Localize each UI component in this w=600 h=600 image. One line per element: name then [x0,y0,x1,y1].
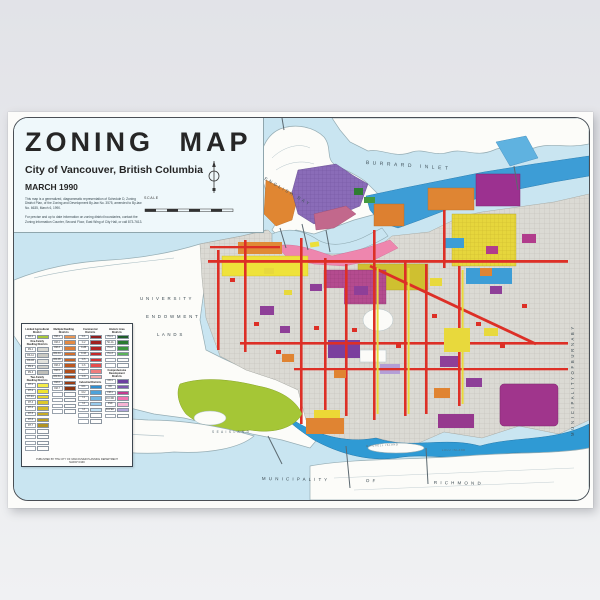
legend-columns: Limited Agricultural DistrictRA-1One-Fam… [25,327,129,459]
legend-swatch [64,375,76,380]
legend-code: C-2 [78,340,89,345]
legend-box: Limited Agricultural DistrictRA-1One-Fam… [21,323,133,467]
marpole-yellow [314,410,340,418]
marpole-orange [306,418,344,434]
legend-code [105,414,116,419]
legend-entry-empty [52,404,76,409]
legend-swatch [90,335,102,340]
legend-swatch [90,346,102,351]
scale-bar-group: SCALE [144,196,239,220]
legend-code: C-5 [78,358,89,363]
legend-entry-I-3: I-3 [78,408,102,413]
legend-swatch [64,346,76,351]
map-note-2: For precise and up to date information o… [25,215,143,224]
legend-section-header: Multiple Dwelling Districts [52,328,76,334]
legend-swatch [90,352,102,357]
legend-swatch [90,358,102,363]
legend-swatch [117,414,129,419]
title-block: ZONING MAP City of Vancouver, British Co… [14,118,264,233]
legend-entry-C-2B: C-2B [78,346,102,351]
legend-section-header: Limited Agricultural District [25,328,49,334]
legend-code: HA-2 [105,346,116,351]
legend-section-header: Commercial Districts [78,328,102,334]
legend-code: FCCDD [105,396,116,401]
legend-entry-RT-1: RT-1 [25,383,49,388]
legend-swatch [117,379,129,384]
legend-entry-C-8: C-8 [78,375,102,380]
legend-code: RM-3A [52,352,63,357]
champlain-purple [500,384,558,426]
legend-entry-I-2: I-2 [78,402,102,407]
legend-entry-RS-2: RS-2 [25,365,49,370]
legend-code: RM-3B [52,358,63,363]
hastings-orange [428,188,474,210]
map-label-lulu-island: LULU ISLAND [442,449,466,452]
legend-code [105,358,116,363]
legend-code: RM-7 [52,386,63,391]
legend-swatch [90,390,102,395]
map-date: MARCH 1990 [25,182,263,192]
map-frame: ZONING MAP City of Vancouver, British Co… [13,117,590,501]
legend-entry-RT-3: RT-3 [25,400,49,405]
legend-entry-empty [78,413,102,418]
legend-swatch [37,359,49,364]
legend-entry-RM-1: RM-1 [52,335,76,340]
legend-entry-RS-1B: RS-1B [25,359,49,364]
legend-code: M-2 [78,390,89,395]
legend-section-header: Industrial Districts [78,381,102,384]
legend-swatch [64,386,76,391]
legend-entry-RT-2A: RT-2A [25,395,49,400]
legend-entry-M-2: M-2 [78,390,102,395]
legend-code [25,446,36,451]
musqueam-white [194,411,226,425]
legend-swatch [37,370,49,375]
legend-code: RT-4 [25,406,36,411]
legend-code: RT-3 [25,400,36,405]
legend-code: RM-1 [52,335,63,340]
legend-entry-RT-5: RT-5 [25,412,49,417]
legend-swatch [117,335,129,340]
legend-entry-C-6: C-6 [78,363,102,368]
legend-code: I-3 [78,408,89,413]
legend-swatch [64,409,76,414]
legend-entry-RT-2: RT-2 [25,389,49,394]
legend-code: FM-1 [105,391,116,396]
legend-swatch [90,419,102,424]
legend-code: RS-1A [25,353,36,358]
legend-swatch [37,400,49,405]
legend-entry-C-7: C-7 [78,369,102,374]
legend-entry-C-3A: C-3A [78,352,102,357]
legend-code: C-6 [78,363,89,368]
map-title: ZONING MAP [25,127,263,158]
legend-entry-FCCDD: FCCDD [105,396,129,401]
legend-entry-FM-1: FM-1 [105,391,129,396]
legend-entry-C-1: C-1 [78,335,102,340]
legend-swatch [37,406,49,411]
legend-entry-empty [25,435,49,440]
fraserview-purple [438,414,474,428]
map-label-of: O F [366,478,376,483]
legend-swatch [64,352,76,357]
legend-code: RM-5 [52,369,63,374]
pne-purple [476,174,520,206]
legend-swatch [90,385,102,390]
legend-entry-M-1: M-1 [78,385,102,390]
legend-swatch [64,381,76,386]
legend-entry-RT-6: RT-6 [25,418,49,423]
legend-entry-RM-5A: RM-5A [52,375,76,380]
legend-swatch [90,363,102,368]
legend-code [25,435,36,440]
legend-swatch [64,398,76,403]
legend-entry-CD-1: CD-1 [105,379,129,384]
legend-swatch [90,375,102,380]
legend-entry-RM-7: RM-7 [52,386,76,391]
legend-swatch [64,358,76,363]
legend-code: RT-1 [25,383,36,388]
legend-entry-empty [105,363,129,368]
legend-section-header: Historic Area Districts [105,328,129,334]
legend-entry-HA-1A: HA-1A [105,340,129,345]
map-note-1: This map is a generalized, diagrammatic … [25,197,143,210]
legend-entry-I-1: I-1 [78,396,102,401]
legend-code: BCPED [105,408,116,413]
legend-swatch [117,363,129,368]
legend-code: RS-1 [25,347,36,352]
legend-swatch [90,402,102,407]
legend-entry-RM-3A: RM-3A [52,352,76,357]
legend-swatch [90,340,102,345]
legend-entry-RM-5: RM-5 [52,369,76,374]
legend-entry-RM-4: RM-4 [52,363,76,368]
legend-code: RT-2 [25,389,36,394]
legend-code: HA-1 [105,335,116,340]
legend-code: RT-5 [25,412,36,417]
map-label-uel-1: U N I V E R S I T Y [140,296,192,301]
legend-swatch [117,408,129,413]
legend-code: I-2 [78,402,89,407]
legend-entry-RM-3B: RM-3B [52,358,76,363]
legend-code: DD [105,385,116,390]
legend-swatch [37,383,49,388]
poster: ZONING MAP City of Vancouver, British Co… [8,112,593,508]
legend-code [78,413,89,418]
legend-entry-RS-3: RS-3 [25,370,49,375]
map-label-uel-3: L A N D S [157,332,183,337]
legend-code [105,363,116,368]
legend-swatch [117,340,129,345]
legend-entry-RT-4: RT-4 [25,406,49,411]
legend-code: RT-2A [25,395,36,400]
compass-north-arrow [206,160,222,194]
legend-swatch [37,353,49,358]
legend-swatch [117,346,129,351]
legend-entry-empty [52,392,76,397]
legend-swatch [37,423,49,428]
legend-swatch [90,408,102,413]
legend-swatch [37,395,49,400]
legend-swatch [37,446,49,451]
legend-code: RT-7 [25,423,36,428]
legend-swatch [64,340,76,345]
legend-entry-C-5: C-5 [78,358,102,363]
map-label-sea-island: S E A I S L A N D [212,430,250,434]
legend-entry-empty [25,446,49,451]
legend-code: RM-5A [52,375,63,380]
legend-column-1: Limited Agricultural DistrictRA-1One-Fam… [25,327,49,459]
legend-code: C-1 [78,335,89,340]
legend-entry-RM-2: RM-2 [52,340,76,345]
map-subtitle: City of Vancouver, British Columbia [25,164,263,176]
legend-code: RS-2 [25,365,36,370]
legend-code: FSD [105,402,116,407]
legend-swatch [117,352,129,357]
legend-swatch [37,429,49,434]
legend-code: C-2B [78,346,89,351]
legend-swatch [64,404,76,409]
legend-code [52,392,63,397]
legend-code [25,429,36,434]
legend-swatch [64,369,76,374]
legend-code: CD-1 [105,379,116,384]
legend-entry-HA-1: HA-1 [105,335,129,340]
legend-swatch [117,358,129,363]
legend-code: HA-3 [105,352,116,357]
scale-label: SCALE [144,196,239,200]
legend-code: RM-2 [52,340,63,345]
legend-swatch [117,385,129,390]
legend-section-header: One-Family Dwelling Districts [25,340,49,346]
legend-swatch [64,335,76,340]
legend-entry-C-2: C-2 [78,340,102,345]
legend-code: RM-6 [52,381,63,386]
legend-entry-empty [105,414,129,419]
legend-entry-RT-7: RT-7 [25,423,49,428]
legend-code: C-7 [78,369,89,374]
legend-entry-DD: DD [105,385,129,390]
blue-patch-ne [444,238,464,248]
legend-entry-RM-3: RM-3 [52,346,76,351]
legend-swatch [37,441,49,446]
map-label-municipality-of-burnaby: M U N I C I P A L I T Y O F B U R N A B … [570,326,575,436]
legend-code: C-3A [78,352,89,357]
legend-entry-RS-1: RS-1 [25,347,49,352]
legend-section-header: Two-Family Dwelling Districts [25,376,49,382]
strathcona-orange [374,204,404,226]
legend-swatch [37,418,49,423]
legend-code [52,398,63,403]
legend-entry-empty [105,358,129,363]
legend-entry-HA-3: HA-3 [105,352,129,357]
legend-entry-empty [52,409,76,414]
legend-swatch [37,335,49,340]
legend-entry-empty [52,398,76,403]
legend-code [52,409,63,414]
gastown-green [354,188,363,195]
legend-code: RT-6 [25,418,36,423]
legend-swatch [117,402,129,407]
legend-swatch [37,389,49,394]
product-photo-backdrop: { "poster": { "title": "ZONING MAP", "su… [0,0,600,600]
legend-entry-empty [78,419,102,424]
legend-code: M-1 [78,385,89,390]
legend-entry-empty [25,429,49,434]
legend-entry-BCPED: BCPED [105,408,129,413]
legend-code: RM-4 [52,363,63,368]
legend-entry-RS-1A: RS-1A [25,353,49,358]
legend-column-3: Commercial DistrictsC-1C-2C-2BC-3AC-5C-6… [78,327,102,459]
legend-entry-HA-2: HA-2 [105,346,129,351]
legend-entry-empty [25,441,49,446]
legend-code: RM-3 [52,346,63,351]
legend-code: RA-1 [25,335,36,340]
legend-column-4: Historic Area DistrictsHA-1HA-1AHA-2HA-3… [105,327,129,459]
map-label-uel-2: E N D O W M E N T [146,314,199,319]
legend-code [78,419,89,424]
legend-code: HA-1A [105,340,116,345]
legend-swatch [37,365,49,370]
legend-swatch [37,435,49,440]
legend-swatch [37,412,49,417]
legend-swatch [64,363,76,368]
legend-swatch [90,369,102,374]
legend-swatch [90,396,102,401]
legend-code: I-1 [78,396,89,401]
legend-swatch [117,396,129,401]
legend-entry-FSD: FSD [105,402,129,407]
legend-entry-RA-1: RA-1 [25,335,49,340]
legend-footer: PUBLISHED BY THE CITY OF VANCOUVER PLANN… [22,458,132,465]
legend-column-2: Multiple Dwelling DistrictsRM-1RM-2RM-3R… [52,327,76,459]
legend-code [52,404,63,409]
chinatown-green [364,197,375,203]
legend-entry-RM-6: RM-6 [52,381,76,386]
legend-code [25,441,36,446]
legend-code: C-8 [78,375,89,380]
legend-swatch [90,413,102,418]
legend-footer-line2: MARCH 1990 [22,461,132,464]
legend-swatch [117,391,129,396]
shaughnessy-gray [310,288,344,310]
map-label-richmond: R I C H M O N D [434,480,482,486]
legend-swatch [64,392,76,397]
legend-code: RS-1B [25,359,36,364]
scale-bar [144,207,236,215]
legend-code: RS-3 [25,370,36,375]
legend-swatch [37,347,49,352]
legend-section-header: Comprehensive Development Districts [105,369,129,378]
